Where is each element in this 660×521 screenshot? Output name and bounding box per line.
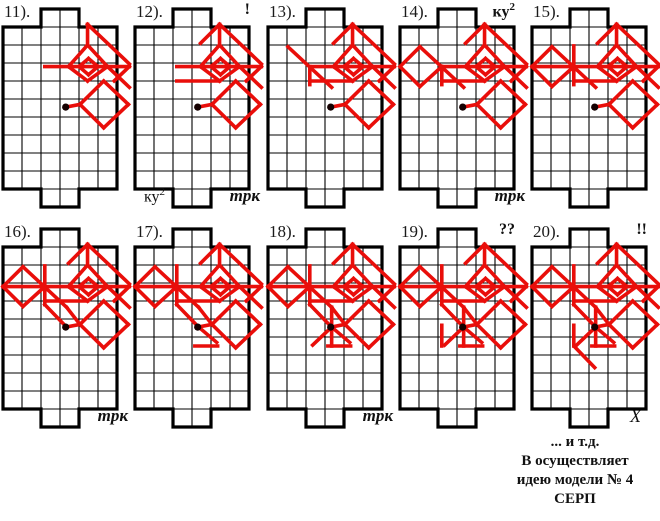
panel-grid-15: red-pattern-15: [529, 0, 660, 212]
start-dot: [591, 104, 598, 111]
panel-number-label-14: 14).: [401, 2, 428, 22]
figure-sheet: red-pattern-1111).red-pattern-1212).!ку2…: [0, 0, 660, 521]
start-dot: [459, 324, 466, 331]
panel-number-label-13: 13).: [269, 2, 296, 22]
top-annotation-14: ку2: [493, 1, 516, 21]
panel-grid-12: red-pattern-12: [132, 0, 264, 212]
footer-line-2: идею модели № 4: [490, 471, 660, 490]
footer-line-etc: ... и т.д.: [490, 433, 660, 452]
panel-number-label-17: 17).: [136, 222, 163, 242]
footer-caption: ... и т.д. В осуществляет идею модели № …: [490, 433, 660, 509]
panel-grid-11: red-pattern-11: [0, 0, 132, 212]
panel-grid-19: red-pattern-19: [397, 220, 529, 432]
panel-16: red-pattern-1616).трк: [0, 220, 132, 435]
panel-19: red-pattern-1919).??: [397, 220, 529, 435]
start-dot: [194, 104, 201, 111]
panel-number-label-18: 18).: [269, 222, 296, 242]
panel-number-label-20: 20).: [533, 222, 560, 242]
top-annotation-19: ??: [499, 221, 515, 239]
footer-line-1: В осуществляет: [490, 452, 660, 471]
panel-grid-14: red-pattern-14: [397, 0, 529, 212]
start-dot: [459, 104, 466, 111]
panel-15: red-pattern-1515).: [529, 0, 660, 215]
panel-20: red-pattern-2020).!!X: [529, 220, 660, 435]
top-annotation-12: !: [245, 1, 250, 19]
panel-grid-18: red-pattern-18: [265, 220, 397, 432]
bottom-left-annotation-12: ку2: [144, 186, 165, 206]
bottom-right-annotation-18: трк: [363, 406, 393, 426]
start-dot: [62, 104, 69, 111]
bottom-right-annotation-16: трк: [98, 406, 128, 426]
start-dot: [327, 324, 334, 331]
panel-17: red-pattern-1717).: [132, 220, 264, 435]
panel-grid-16: red-pattern-16: [0, 220, 132, 432]
panel-number-label-15: 15).: [533, 2, 560, 22]
panel-number-label-11: 11).: [4, 2, 30, 22]
footer-line-3: СЕРП: [490, 490, 660, 509]
bottom-right-annotation-12: трк: [230, 186, 260, 206]
top-annotation-20: !!: [636, 221, 647, 239]
panel-number-label-12: 12).: [136, 2, 163, 22]
panel-grid-13: red-pattern-13: [265, 0, 397, 212]
panel-number-label-19: 19).: [401, 222, 428, 242]
panel-14: red-pattern-1414).ку2трк: [397, 0, 529, 215]
panel-grid-20: red-pattern-20: [529, 220, 660, 432]
panel-13: red-pattern-1313).: [265, 0, 397, 215]
start-dot: [591, 324, 598, 331]
start-dot: [194, 324, 201, 331]
panel-12: red-pattern-1212).!ку2трк: [132, 0, 264, 215]
start-dot: [327, 104, 334, 111]
panel-18: red-pattern-1818).трк: [265, 220, 397, 435]
corner-annotation-20: X: [630, 406, 641, 427]
panel-11: red-pattern-1111).: [0, 0, 132, 215]
bottom-right-annotation-14: трк: [495, 186, 525, 206]
start-dot: [62, 324, 69, 331]
panel-grid-17: red-pattern-17: [132, 220, 264, 432]
panel-number-label-16: 16).: [4, 222, 31, 242]
